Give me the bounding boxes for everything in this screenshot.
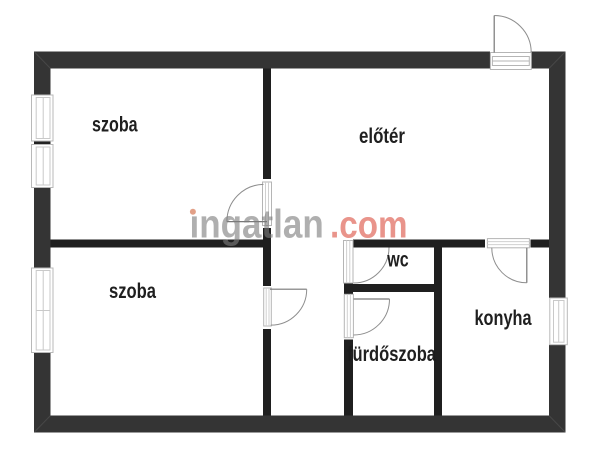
svg-text:konyha: konyha [475, 307, 532, 330]
svg-text:fürdőszoba: fürdőszoba [347, 343, 436, 366]
svg-text:előtér: előtér [359, 125, 405, 148]
svg-text:szoba: szoba [92, 114, 138, 137]
svg-text:ıngatlan: ıngatlan [190, 203, 324, 247]
svg-text:.com: .com [330, 205, 408, 247]
svg-text:wc: wc [387, 248, 409, 271]
svg-text:szoba: szoba [109, 280, 156, 303]
